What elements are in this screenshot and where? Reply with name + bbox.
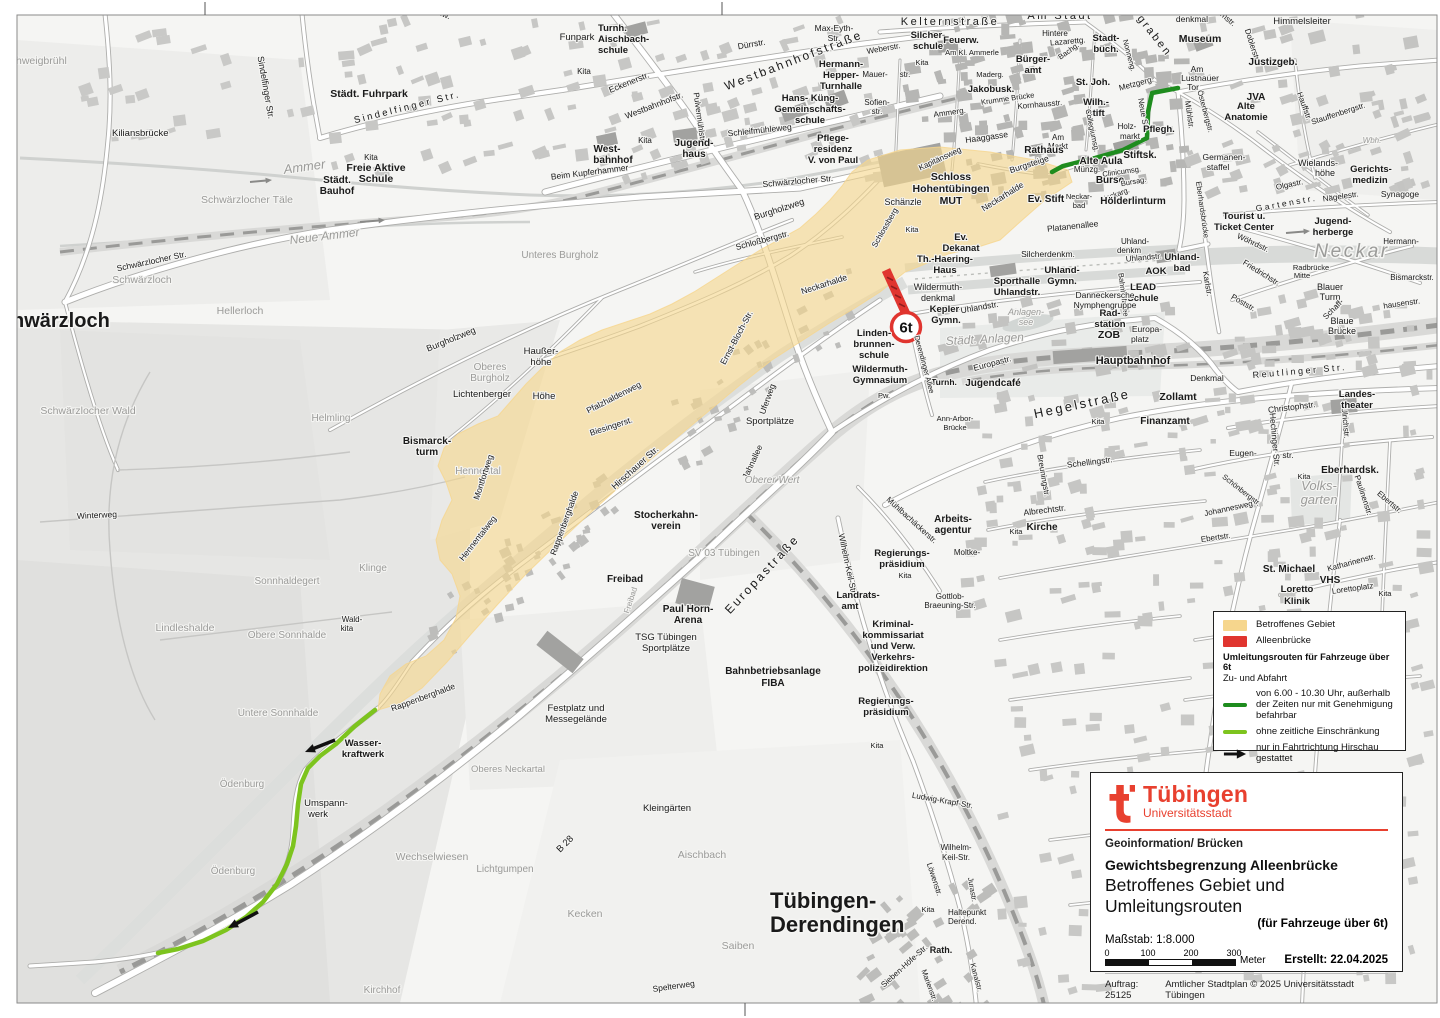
map-label: Blaue: [1330, 316, 1353, 326]
map-label: hwärzloch: [12, 310, 110, 332]
map-label: Lindleshalde: [156, 622, 215, 634]
map-label: Burgholz: [470, 373, 509, 384]
restricted-route-line: [1223, 703, 1247, 707]
map-label: Bauhof: [320, 186, 355, 197]
map-label: Linden-: [857, 328, 891, 339]
map-label: amt: [842, 601, 860, 612]
map-label: Wildermuth-: [914, 282, 963, 292]
map-label: Turnhalle: [820, 81, 862, 92]
map-label: Stiftsk.: [1123, 150, 1157, 161]
map-label: ZOB: [1098, 329, 1121, 341]
map-label: Sonnhaldegert: [254, 576, 319, 587]
map-label: St. Joh.: [1076, 77, 1110, 88]
scale-label: Maßstab: 1:8.000: [1105, 934, 1388, 946]
map-label: kraftwerk: [342, 749, 385, 760]
map-label: denkmal: [921, 293, 955, 303]
map-label: Kita: [1010, 527, 1024, 536]
map-label: Oberes Neckartal: [471, 764, 545, 775]
map-label: Paul Horn-: [663, 604, 714, 615]
map-label: Kita: [916, 58, 930, 67]
map-label: Mauer-: [862, 70, 888, 79]
map-label: Unteres Burgholz: [521, 250, 598, 261]
map-label: Kiliansbrücke: [112, 128, 169, 139]
department-label: Geoinformation/ Brücken: [1105, 838, 1388, 850]
map-label: str.: [900, 70, 911, 79]
scale-tick-300: 300: [1226, 948, 1241, 958]
map-label: Jugend-: [1315, 216, 1352, 227]
map-label: Stocherkahn-: [634, 510, 698, 521]
map-label: Eugen-: [1229, 448, 1257, 458]
scale-unit: Meter: [1240, 955, 1266, 966]
map-label: garten: [1301, 492, 1338, 507]
map-label: Städt.: [323, 175, 351, 186]
map-label: Regierungs-: [874, 548, 929, 559]
map-label: Messegelände: [545, 714, 607, 725]
map-label: Verkehrs-: [871, 652, 914, 663]
map-label: Schwärzlocher Täle: [201, 194, 293, 206]
free-route-label: ohne zeitliche Einschränkung: [1256, 727, 1380, 738]
copyright-note: Amtlicher Stadtplan © 2025 Universitätss…: [1165, 979, 1388, 1001]
map-label: Silcherdenkm.: [1021, 249, 1075, 259]
map-label: Museum: [1179, 33, 1222, 45]
map-label: Neckar-: [1066, 192, 1093, 201]
map-label: bad: [1073, 201, 1086, 210]
map-label: Funpark: [560, 32, 595, 43]
map-label: Kita: [922, 905, 936, 914]
map-label: Denkmal: [1190, 373, 1224, 383]
map-label: schule: [598, 45, 628, 56]
legend-affected-row: Betroffenes Gebiet: [1223, 620, 1397, 631]
map-label: höhe: [530, 357, 551, 368]
map-label: theater: [1341, 400, 1373, 411]
map-label: büch.: [1093, 44, 1118, 55]
map-label: Ev.: [954, 232, 968, 243]
map-label: SV 03 Tübingen: [688, 548, 760, 559]
map-label: Hauptbahnhof: [1096, 355, 1171, 367]
map-label: Saiben: [722, 940, 755, 952]
map-label: Sportplätze: [746, 416, 794, 427]
document-title: Gewichtsbegrenzung Alleenbrücke: [1105, 857, 1388, 873]
legend-routes-heading: Umleitungsrouten für Fahrzeuge über 6t: [1223, 652, 1397, 672]
map-label: Brücke: [943, 423, 966, 432]
map-label: Kita: [577, 67, 591, 76]
map-label: Höhe: [533, 391, 556, 402]
map-label: Jugendcafé: [965, 378, 1021, 389]
bridge-swatch: [1223, 636, 1247, 647]
map-label: Kita: [871, 741, 885, 750]
map-label: Kelternstraße: [901, 16, 1000, 28]
map-label: Max-Eyth-: [815, 23, 854, 33]
map-label: Germanen-: [1203, 152, 1246, 162]
map-label: Wilhelm-: [940, 843, 971, 852]
map-label: kita: [341, 624, 354, 633]
map-label: kommissariat: [862, 630, 924, 641]
document-subtitle: Betroffenes Gebiet und Umleitungsrouten: [1105, 875, 1388, 917]
map-label: Ev. Stift: [1028, 194, 1065, 205]
city-subtitle: Universitätsstadt: [1143, 806, 1248, 822]
map-label: Aischbach: [678, 849, 727, 861]
map-label: Haus: [933, 265, 956, 276]
map-label: Jugend-: [675, 138, 714, 149]
map-label: Gottlob-: [936, 592, 965, 601]
map-label: residenz: [814, 144, 853, 155]
map-label: Justizgeb.: [1249, 57, 1298, 68]
direction-label: nur in Fahrtrichtung Hirschau gestattet: [1256, 743, 1397, 765]
map-label: Pflegh.: [1143, 124, 1175, 135]
map-label: Kirchhof: [364, 985, 401, 996]
map-label: Haltepunkt: [948, 908, 987, 917]
map-label: Zollamt: [1159, 391, 1197, 403]
map-label: Haußer-: [524, 346, 559, 357]
scale-tick-200: 200: [1183, 948, 1198, 958]
map-label: Gymnasium: [853, 375, 907, 386]
map-label: amt: [1025, 65, 1043, 76]
map-label: Wielands-: [1298, 158, 1338, 168]
map-label: Landrats-: [836, 590, 879, 601]
map-label: Alte: [1237, 101, 1255, 112]
restricted-route-label: von 6.00 - 10.30 Uhr, außerhalb der Zeit…: [1256, 689, 1397, 722]
map-label: Schule: [359, 173, 394, 185]
red-divider: [1105, 829, 1388, 831]
map-label: Untere Sonnhalde: [238, 708, 319, 719]
map-label: Maderg.: [976, 70, 1004, 79]
weight-limit-badge-text: 6t: [899, 320, 912, 337]
map-label: Lichtgumpen: [476, 864, 533, 875]
map-label: Himmelsleiter: [1273, 16, 1331, 27]
map-label: str.: [1282, 450, 1293, 460]
map-label: haus: [682, 149, 706, 160]
map-label: werk: [307, 809, 328, 820]
map-label: Am Kl. Ammerle: [945, 48, 999, 57]
map-label: Hellerloch: [217, 305, 264, 317]
map-label: Moltke-: [954, 548, 981, 557]
map-label: Gemeinschafts-: [774, 104, 845, 115]
map-label: Alte Aula: [1080, 156, 1123, 167]
map-label: Kita: [906, 225, 920, 234]
scale-tick-100: 100: [1140, 948, 1155, 958]
map-label: Derend.: [948, 917, 976, 926]
map-label: Aischbach-: [598, 34, 649, 45]
map-label: Gymn.: [931, 315, 961, 326]
map-label: Obere Sonnhalde: [248, 630, 327, 641]
brand-row: Tübingen Universitätsstadt: [1105, 783, 1388, 823]
map-label: Oberer Wert: [745, 475, 801, 486]
map-label: Stadt-: [1093, 33, 1120, 44]
map-label: FIBA: [761, 678, 784, 689]
map-label: Schwärzloch: [112, 274, 172, 286]
map-label: staffel: [1207, 162, 1230, 172]
map-label: Regierungs-: [858, 696, 913, 707]
map-label: Umspann-: [304, 798, 348, 809]
map-label: Wechselwiesen: [396, 851, 469, 863]
map-label: platz: [1131, 334, 1149, 344]
legend-restricted-route-row: von 6.00 - 10.30 Uhr, außerhalb der Zeit…: [1223, 689, 1397, 722]
map-label: TSG Tübingen: [635, 632, 697, 643]
map-label: Bahnbetriebsanlage: [725, 666, 821, 677]
map-label: Volks-: [1301, 478, 1337, 493]
created-date: Erstellt: 22.04.2025: [1284, 954, 1388, 966]
map-label: St. Michael: [1263, 564, 1315, 575]
map-label: Kepler-: [930, 304, 963, 315]
map-label: Kirche: [1026, 522, 1058, 533]
map-label: schule: [859, 350, 889, 361]
map-label: Bismarckstr.: [1390, 273, 1434, 282]
map-label: turm: [416, 447, 438, 458]
map-label: schule: [913, 41, 943, 52]
map-label: Neckar: [1314, 241, 1389, 262]
map-label: Festplatz und: [547, 703, 604, 714]
free-route-line: [1223, 730, 1247, 734]
map-label: Kita: [364, 153, 378, 162]
map-label: Mitte: [1294, 271, 1310, 280]
map-label: Wald-: [342, 615, 363, 624]
legend-free-route-row: ohne zeitliche Einschränkung: [1223, 727, 1397, 738]
map-label: Schänzle: [884, 197, 921, 207]
map-label: Th.-Haering-: [917, 254, 973, 265]
map-label: Winterweg: [77, 509, 118, 521]
map-label: Feuerw.: [943, 35, 979, 46]
map-label: Pflege-: [817, 133, 849, 144]
scalebar-row: 0 100 200 300 Meter Erstellt: 22.04.2025: [1105, 948, 1388, 966]
map-label: Arbeits-: [934, 514, 972, 525]
direction-arrow-icon: [1223, 748, 1247, 760]
city-name: Tübingen: [1143, 783, 1248, 806]
map-label: agentur: [935, 525, 972, 536]
map-label: West-: [593, 144, 620, 155]
map-label: medizin: [1352, 175, 1388, 186]
map-label: V. von Paul: [808, 155, 858, 166]
map-label: Silcher-: [911, 30, 946, 41]
map-label: Oberes: [474, 362, 507, 373]
title-block: Tübingen Universitätsstadt Geoinformatio…: [1090, 772, 1403, 972]
map-label: Kita: [638, 136, 652, 145]
map-label: Dekanat: [943, 243, 981, 254]
map-label: Finanzamt: [1140, 416, 1190, 427]
order-number: Auftrag: 25125: [1105, 979, 1165, 1001]
map-label: Lichtenberger: [453, 389, 511, 400]
map-label: Uhland-: [1121, 237, 1149, 246]
map-label: Freibad: [607, 574, 643, 585]
map-label: bad: [1174, 263, 1191, 274]
scale-bar: 0 100 200 300: [1105, 948, 1234, 966]
map-label: markt: [1120, 132, 1141, 141]
map-label: Hepper-: [823, 70, 859, 81]
map-label: Ann-Arbor-: [937, 414, 974, 423]
map-label: VHS: [1320, 575, 1341, 586]
map-label: Städt. Fuhrpark: [330, 88, 408, 100]
map-label: Uhland-: [1164, 252, 1199, 263]
map-label: Synagoge: [1381, 189, 1420, 199]
map-label: Holz-: [1118, 122, 1137, 131]
map-label: Kriminal-: [872, 619, 913, 630]
map-label: präsidium: [863, 707, 908, 718]
map-label: Am: [1052, 133, 1064, 142]
map-label: MUT: [940, 195, 963, 207]
legend-bridge-row: Alleenbrücke: [1223, 636, 1397, 647]
map-label: Ticket Center: [1214, 222, 1274, 233]
map-label: präsidium: [879, 559, 924, 570]
map-label: höhe: [1315, 168, 1335, 178]
map-legend: Betroffenes Gebiet Alleenbrücke Umleitun…: [1213, 611, 1406, 751]
map-label: Wildermuth-: [852, 364, 907, 375]
map-label: Blauer: [1317, 282, 1343, 292]
map-label: Bismarck-: [403, 436, 451, 447]
map-label: Kita: [1379, 589, 1393, 598]
map-label: und Verw.: [871, 641, 916, 652]
map-label: Kleingärten: [643, 803, 691, 814]
map-label: Hans- Küng-: [782, 93, 838, 104]
scale-tick-0: 0: [1104, 948, 1109, 958]
map-label: schule: [795, 115, 825, 126]
map-label: Sporthalle: [994, 276, 1040, 287]
map-label: Gymn.: [1047, 276, 1077, 287]
map-label: Anlagen-: [1007, 307, 1044, 317]
map-label: Arena: [674, 615, 703, 626]
map-label: see: [1019, 317, 1034, 327]
map-label: AOK: [1145, 266, 1166, 277]
gray-divider: [1105, 973, 1388, 974]
map-label: Hölderlinturm: [1100, 196, 1166, 207]
map-label: herberge: [1313, 227, 1354, 238]
affected-area-swatch: [1223, 620, 1247, 631]
map-label: Hermann-: [819, 59, 863, 70]
map-label: Kita: [899, 571, 913, 580]
map-label: Wbh.: [1363, 136, 1382, 145]
map-label: Kecken: [567, 908, 602, 920]
map-label: Tübingen-: [770, 888, 876, 913]
map-label: Hohentübingen: [913, 183, 990, 195]
map-label: Klinik: [1284, 596, 1311, 607]
map-label: Keil-Str.: [942, 853, 970, 862]
map-label: Sportplätze: [642, 643, 690, 654]
map-label: Sofien-: [864, 98, 890, 107]
map-label: Uhlandstr.: [994, 287, 1040, 298]
map-label: Kita: [1092, 417, 1106, 426]
map-label: Europa-: [1132, 324, 1162, 334]
map-label: Schwärzlocher Wald: [40, 405, 135, 417]
document-note: (für Fahrzeuge über 6t): [1105, 916, 1388, 930]
legend-routes-subheading: Zu- und Abfahrt: [1223, 673, 1397, 683]
map-label: Braeuning-Str.: [924, 601, 975, 610]
map-label: str.: [872, 107, 883, 116]
map-label: Derendingen: [770, 912, 904, 937]
map-label: Turnh.: [598, 23, 627, 34]
map-label: Rath.: [930, 945, 953, 955]
map-label: Ödenburg: [220, 778, 264, 790]
map-label: hweigbrühl: [16, 55, 67, 67]
map-label: Schloss: [931, 171, 971, 183]
map-label: brunnen-: [853, 339, 894, 350]
map-viewport: 6t hweigbrühlKiliansbrückeSindelfinger S…: [0, 0, 1440, 1018]
map-label: Ödenburg: [211, 865, 255, 877]
map-label: Helmling: [312, 413, 351, 424]
map-label: Wilh.-: [1083, 97, 1109, 108]
map-label: Wasser-: [345, 738, 382, 749]
map-label: Eberhardsk.: [1321, 465, 1379, 476]
affected-area-label: Betroffenes Gebiet: [1256, 620, 1335, 631]
map-label: Anatomie: [1224, 112, 1267, 123]
map-label: Klinge: [359, 563, 387, 574]
map-label: Hermann-: [1383, 237, 1419, 246]
map-label: verein: [651, 521, 680, 532]
legend-direction-row: nur in Fahrtrichtung Hirschau gestattet: [1223, 743, 1397, 765]
map-label: Loretto: [1281, 584, 1314, 595]
map-label: Bürger-: [1016, 54, 1050, 65]
map-label: Str.: [828, 33, 841, 43]
map-label: Gerichts-: [1350, 164, 1392, 175]
bridge-label: Alleenbrücke: [1256, 636, 1311, 647]
map-label: Nymphengruppe: [1074, 300, 1137, 310]
map-label: Brücke: [1328, 326, 1356, 336]
map-label: Danneckersche: [1075, 290, 1134, 300]
tuebingen-logo-icon: [1105, 783, 1135, 823]
map-label: Landes-: [1339, 389, 1375, 400]
map-label: Uhland-: [1044, 265, 1079, 276]
map-label: Pw.: [878, 391, 890, 400]
map-label: polizeidirektion: [858, 663, 928, 674]
